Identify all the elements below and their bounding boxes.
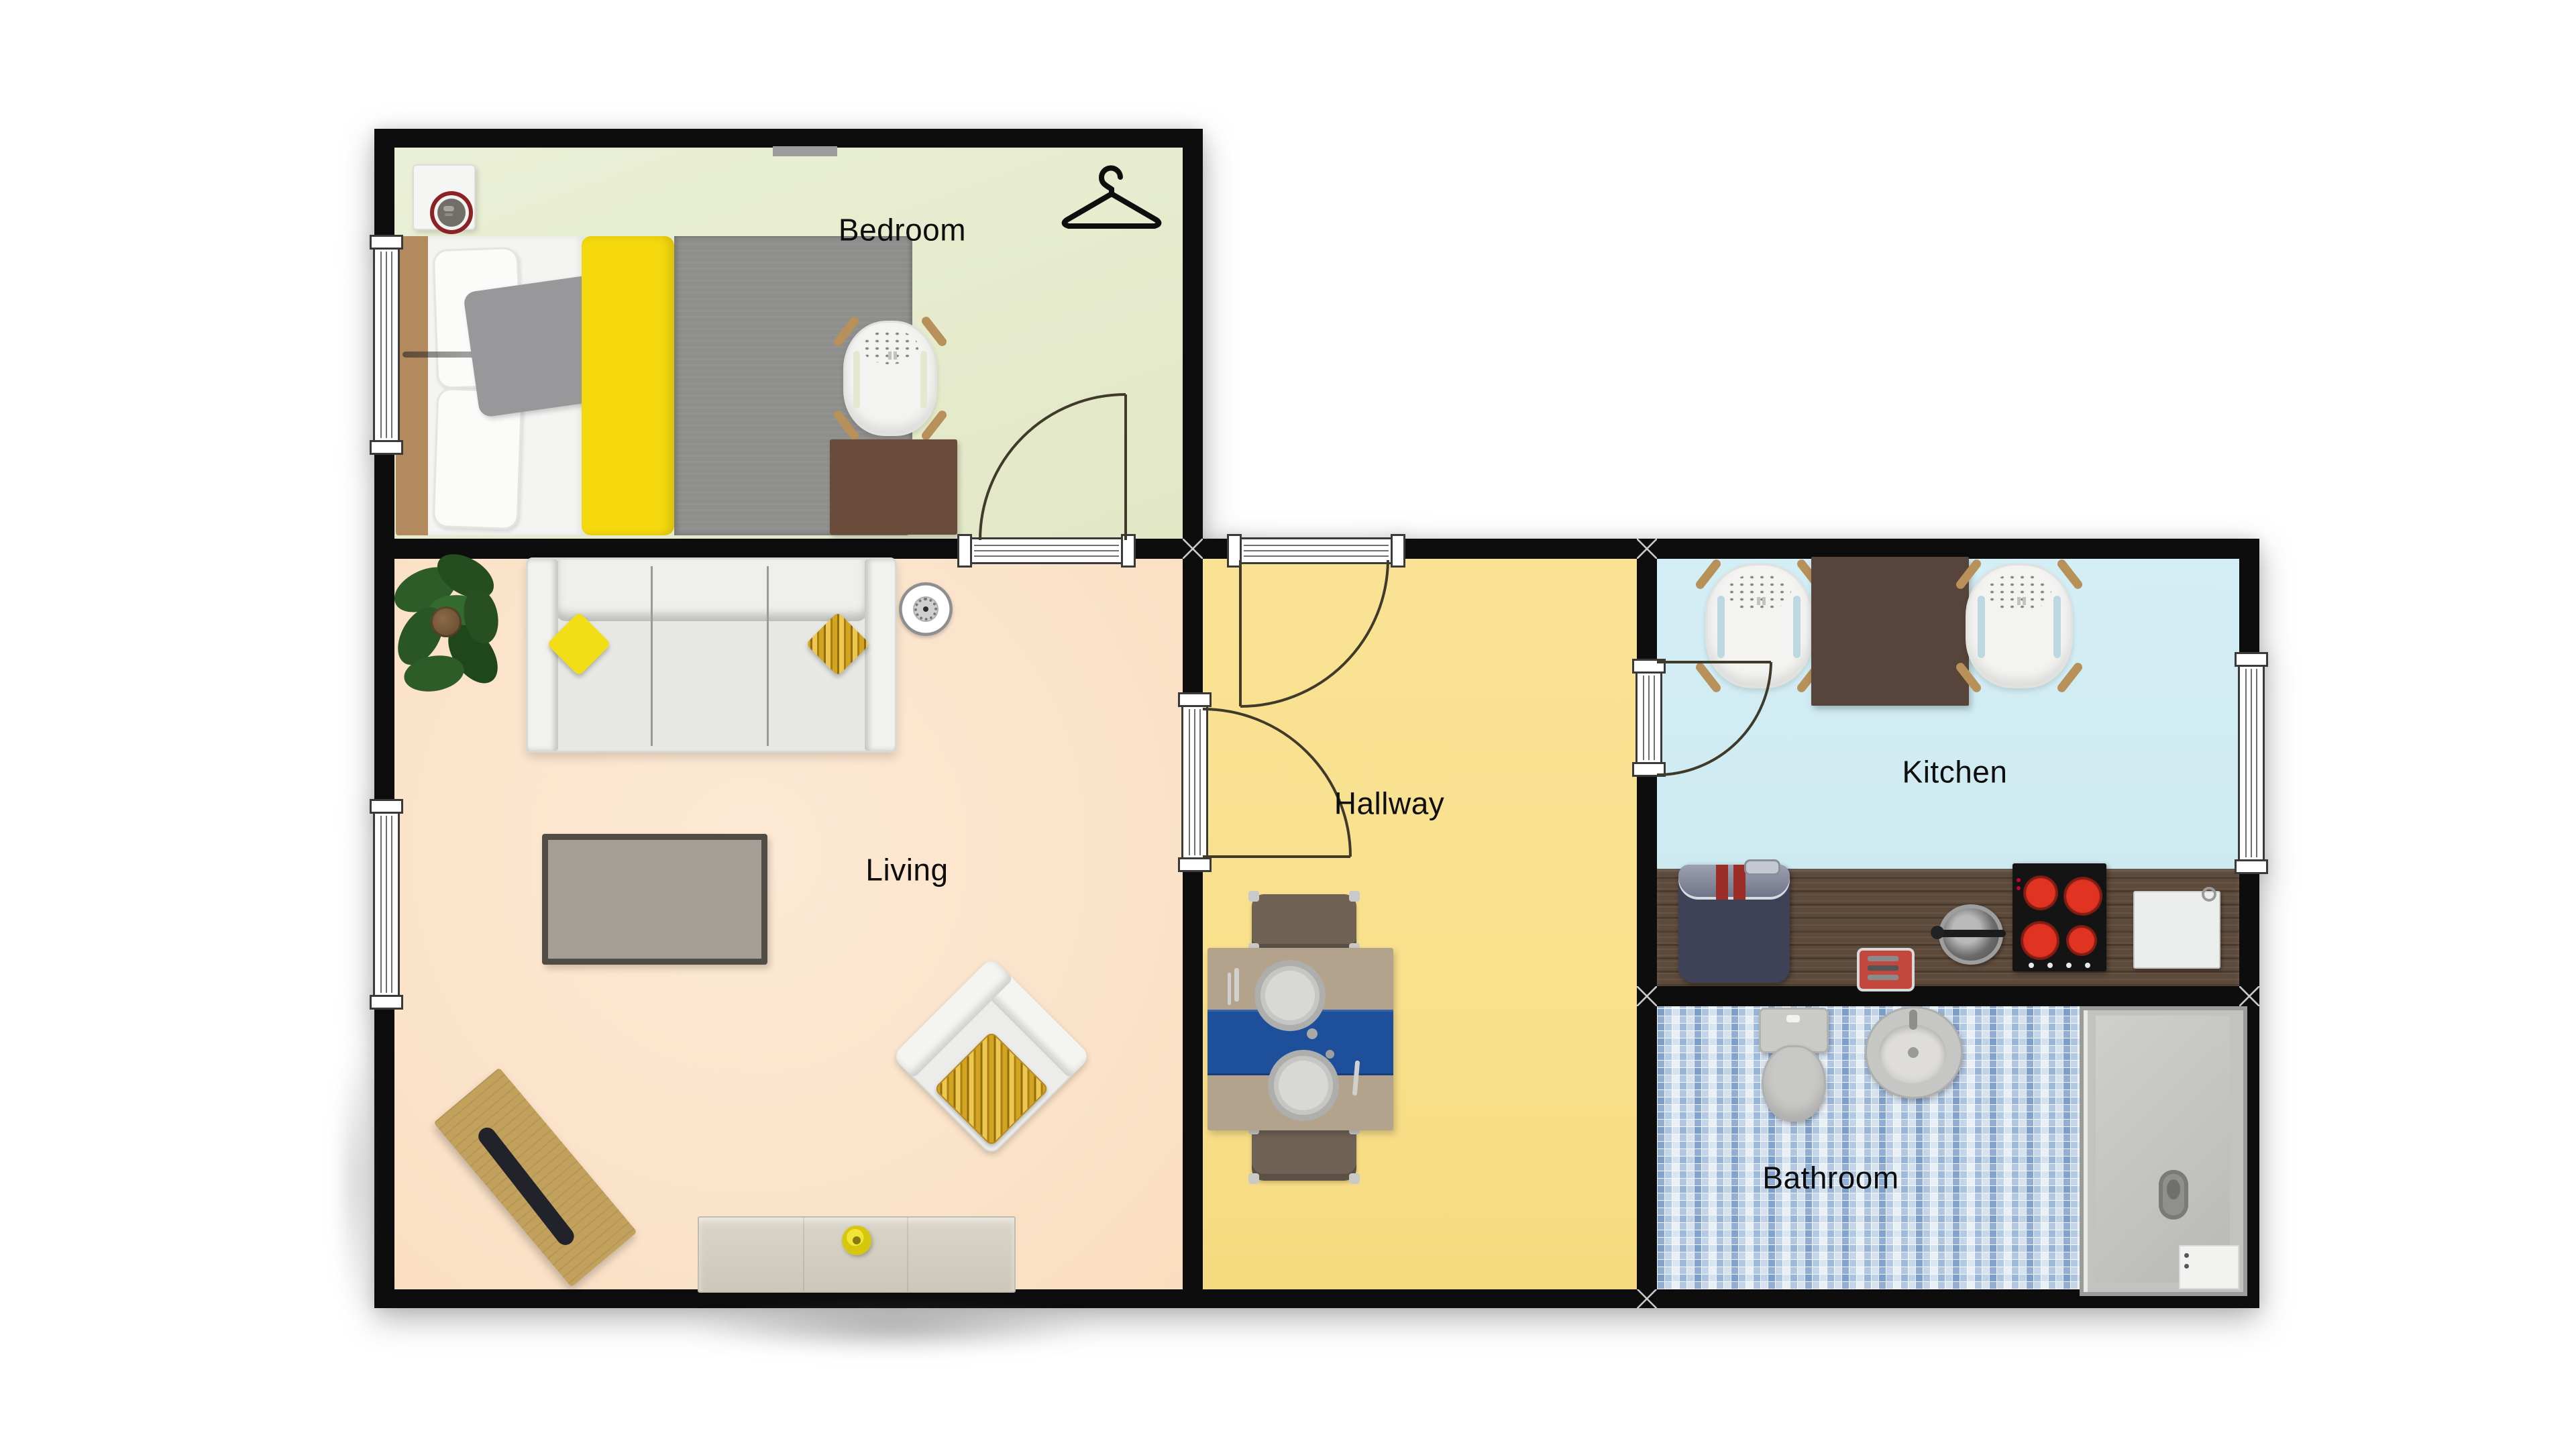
- wall-kitchen-bathroom: [1637, 986, 2259, 1006]
- wall-top: [374, 129, 1203, 148]
- bed-headboard: [396, 236, 428, 535]
- bathroom-label: Bathroom: [1762, 1161, 1898, 1195]
- living-window: [373, 801, 400, 1008]
- living-label: Living: [865, 853, 948, 888]
- sofa-armrest-left: [528, 559, 558, 751]
- shower-tray: [2179, 1245, 2239, 1289]
- fork: [1234, 968, 1239, 1002]
- cutting-board: [2133, 891, 2220, 969]
- dining-chair-top: [1252, 894, 1356, 951]
- sofa: [526, 557, 897, 753]
- kitchen-door-threshold: [1635, 661, 1662, 775]
- bedroom-desk: [830, 439, 957, 535]
- dining-table: [1207, 948, 1393, 1130]
- kitchen-counter: [1657, 869, 2239, 986]
- sideboard: [698, 1216, 1016, 1293]
- hallway-label: Hallway: [1334, 787, 1445, 821]
- dining-chair-bottom: [1252, 1127, 1356, 1181]
- toaster: [1857, 948, 1915, 991]
- ceiling-light-icon: [899, 582, 953, 636]
- stove: [2012, 863, 2106, 971]
- shadow-smudge: [684, 1304, 1100, 1351]
- kitchen-window: [2238, 654, 2265, 872]
- decor-bowl: [842, 1226, 871, 1255]
- wall-hallway-right: [1637, 539, 1657, 1308]
- wall-bottom: [374, 1289, 2259, 1308]
- shadow-smudge: [339, 1046, 372, 1315]
- hanger-icon: [1055, 162, 1169, 239]
- wall-junction-x: [1637, 986, 1657, 1006]
- wall-junction-x: [1183, 539, 1203, 559]
- bed-blanket-yellow: [582, 236, 674, 535]
- bedroom-window: [373, 237, 400, 453]
- fridge-handle: [1744, 859, 1780, 875]
- kitchen-label: Kitchen: [1902, 755, 2008, 790]
- wall-junction-x: [1637, 1289, 1657, 1308]
- shower: [2080, 1006, 2247, 1296]
- wall-junction-x: [2239, 986, 2259, 1006]
- bedroom-door-threshold: [959, 537, 1134, 564]
- kitchen-chair-left: [1705, 563, 1813, 688]
- wall-vent: [773, 146, 837, 156]
- sofa-pillow-zigzag: [806, 612, 870, 676]
- sofa-back: [556, 559, 867, 621]
- bathroom-sink: [1865, 1006, 1963, 1099]
- toilet: [1759, 1008, 1825, 1119]
- bedroom-desk-chair: [843, 321, 937, 436]
- entry-door-threshold: [1229, 537, 1403, 564]
- potted-plant: [389, 555, 520, 710]
- robot-vacuum-dock-icon: [413, 164, 476, 230]
- plate-bottom: [1268, 1050, 1339, 1121]
- wall-junction-x: [1637, 539, 1657, 559]
- coffee-table: [542, 834, 767, 965]
- kitchen-chair-right: [1966, 563, 2073, 688]
- sofa-armrest-right: [865, 559, 895, 751]
- faucet: [1933, 930, 2006, 937]
- plate-top: [1254, 960, 1326, 1031]
- sink-faucet: [1909, 1010, 1917, 1030]
- living-hallway-door-threshold: [1181, 694, 1208, 870]
- bedroom-label: Bedroom: [839, 213, 966, 248]
- floor-plan: Bedroom Living Hallway Kitchen Bathroom: [0, 0, 2576, 1449]
- kitchen-table: [1811, 557, 1969, 706]
- kitchen-sink: [1939, 904, 2003, 965]
- shower-head: [2159, 1170, 2188, 1220]
- robot-vacuum-icon: [430, 191, 473, 234]
- fridge: [1678, 865, 1790, 983]
